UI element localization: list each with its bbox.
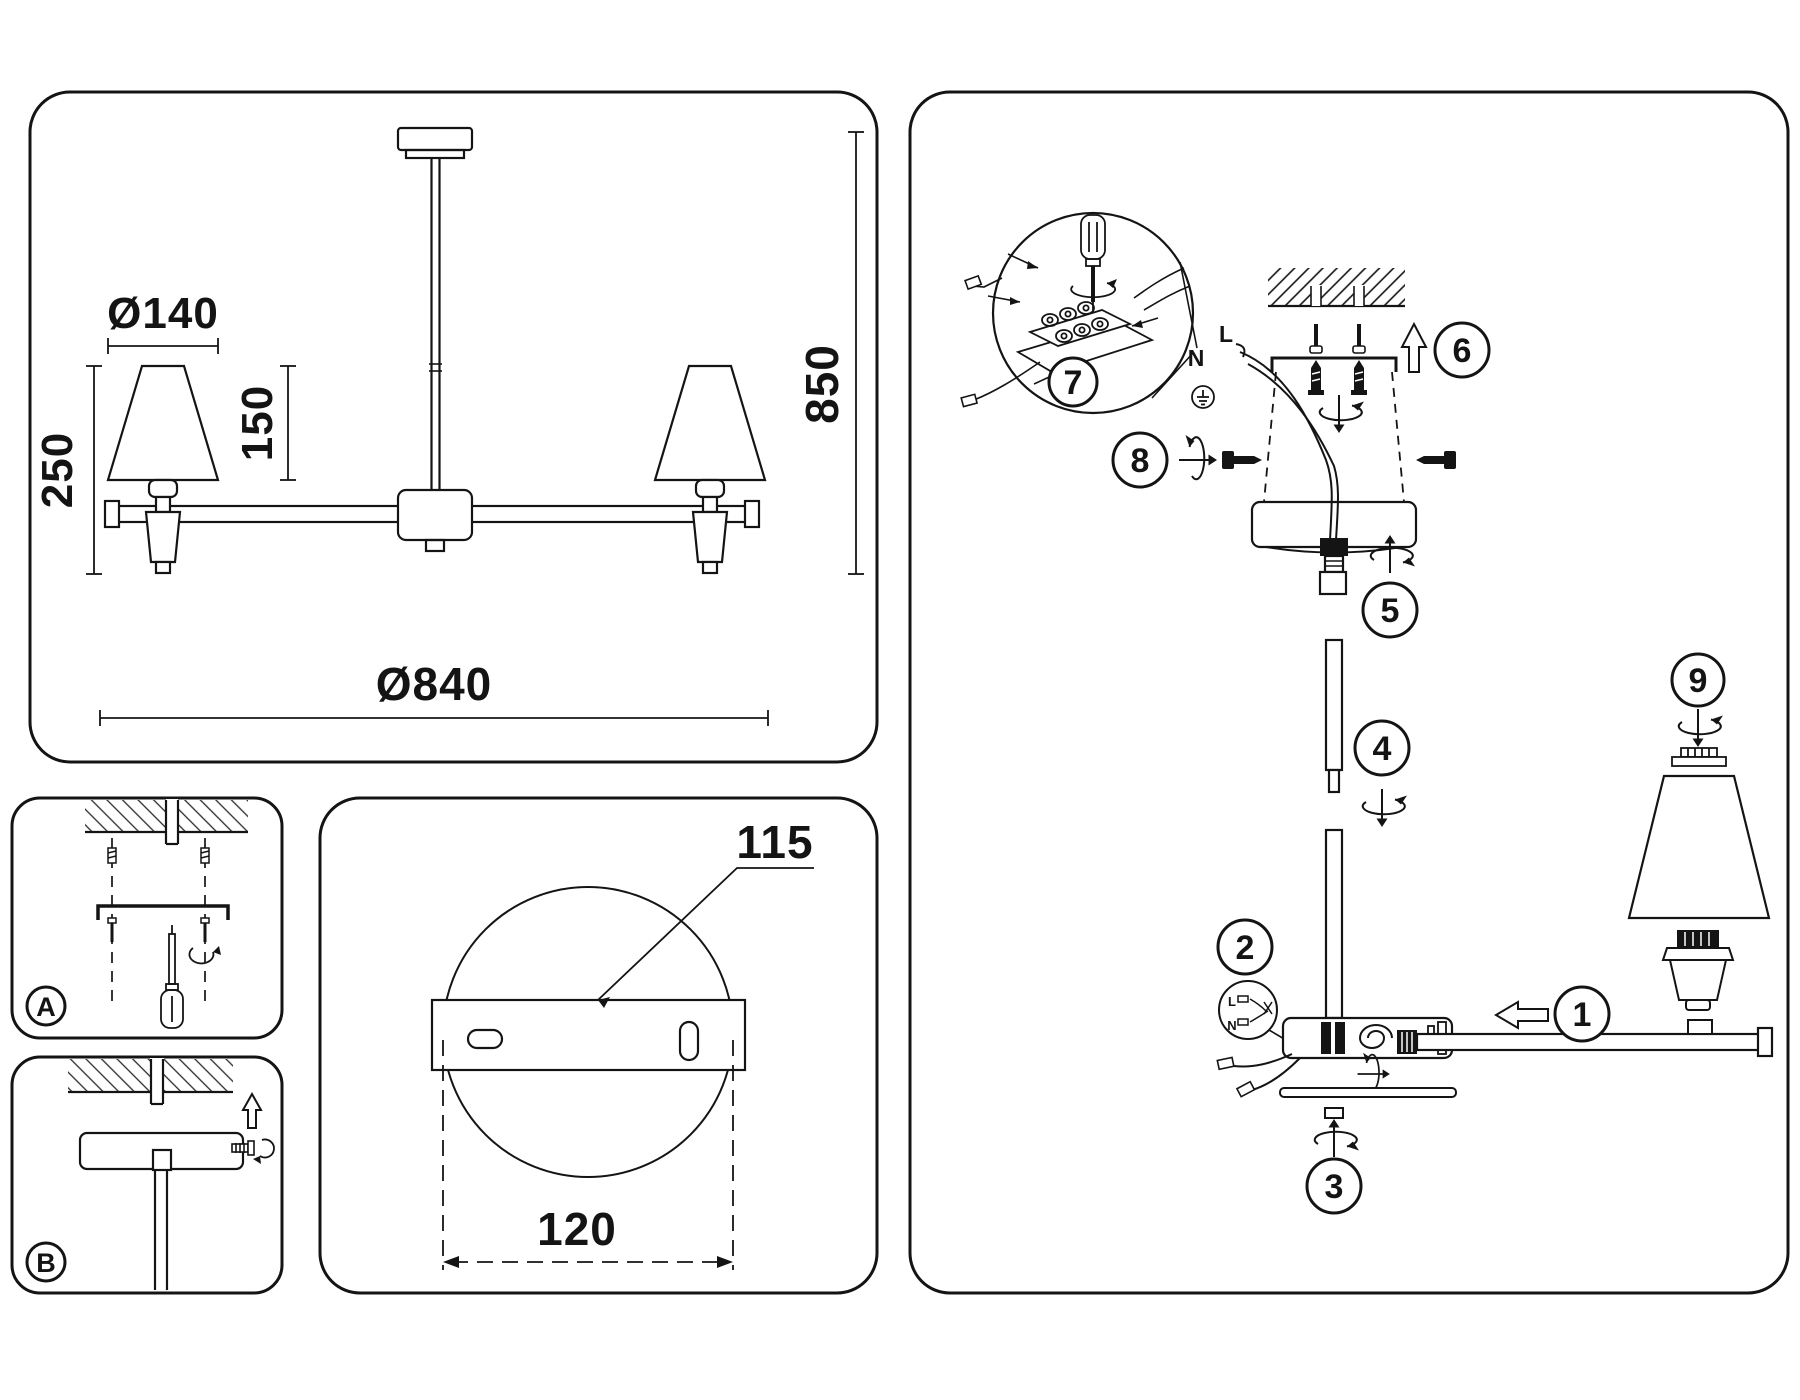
dim-bracket-length-label: 115 [736,816,813,868]
step-9-badge: 9 [1672,654,1724,706]
hub-nut [1325,1108,1343,1118]
connector-neutral-label: N [1227,1018,1236,1033]
dim-mount-span: 120 [443,1040,733,1270]
step-3-label: 3 [1325,1168,1344,1206]
dim-fixture-height: 850 [796,132,864,574]
dim-fixture-height-label: 850 [796,344,848,424]
step-4-label: 4 [1373,730,1392,768]
panel-b-label: B [36,1248,56,1278]
panel-assembly: 6 N L [910,92,1788,1293]
lamp-shade [1629,776,1769,918]
panel-mount-plate: 115 120 [320,798,877,1293]
step-7-badge: 7 [1049,358,1097,406]
screwdriver-icon [161,925,183,1028]
arrow-up-icon [1402,324,1426,372]
step-8-badge: 8 [1113,433,1167,487]
instruction-sheet: Ø140 150 250 Ø840 [0,0,1800,1400]
panel-step-a: A [12,798,282,1038]
rotate-icon [1315,1119,1359,1157]
mounting-bracket [1272,358,1396,372]
dim-fixture-diameter-label: Ø840 [376,658,493,710]
rotate-icon [1179,435,1217,479]
screw-icons [108,918,209,942]
step-6-badge: 6 [1435,323,1489,377]
panel-a-label: A [36,992,56,1022]
ceiling-hatch [1268,268,1405,306]
rod-connector [1329,770,1339,792]
dim-fixture-diameter: Ø840 [100,658,768,726]
diagram-canvas: Ø140 150 250 Ø840 [0,0,1800,1400]
rotate-icon [1679,709,1723,747]
rotate-icon [1363,789,1407,827]
dim-bracket-length: 115 [598,816,814,1008]
rod-lower [1326,830,1342,1018]
terminal-detail-circle: 7 [961,213,1197,413]
step-5-label: 5 [1381,592,1400,630]
step-2-badge: 2 [1218,920,1272,974]
arrow-left-icon [1496,1002,1548,1028]
dim-lamp-height: 250 [33,366,102,574]
step-5-badge: 5 [1363,583,1417,637]
wire-neutral-label: N [1188,345,1205,371]
dim-shade-diameter: Ø140 [107,289,219,354]
dim-mount-span-label: 120 [537,1203,617,1255]
connector-live-label: L [1228,994,1236,1009]
rod-upper [1326,640,1342,770]
lamp-left [108,366,218,573]
dim-shade-height-label: 150 [233,385,282,461]
screw-icons [1310,324,1365,353]
panel-a-badge: A [27,987,65,1025]
hub-cover-plate [1280,1088,1456,1097]
step-3-badge: 3 [1307,1159,1361,1213]
dim-lamp-height-label: 250 [33,432,82,508]
anchor-screw-icons [1308,360,1367,395]
step-7-label: 7 [1064,364,1083,402]
threaded-nipple [1320,538,1348,594]
shade-ring [1672,748,1726,766]
lamp-socket [1663,930,1733,1010]
dim-shade-diameter-label: Ø140 [107,289,219,338]
step-4-badge: 4 [1355,721,1409,775]
wall-anchor-icons [108,848,209,863]
fixture-side-view [105,128,765,573]
wire-live-label: L [1219,321,1233,347]
step-9-label: 9 [1689,662,1708,700]
step-8-label: 8 [1131,442,1150,480]
dim-shade-height: 150 [233,366,296,480]
step-1-badge: 1 [1555,987,1609,1041]
step-1-label: 1 [1573,996,1592,1034]
rotate-icon [1320,395,1364,433]
ground-icon [1192,386,1214,408]
arrow-up-icon [243,1094,261,1128]
lamp-right [655,366,765,573]
step-2-label: 2 [1236,929,1255,967]
side-screw-icons [1222,451,1456,469]
panel-b-badge: B [27,1243,65,1281]
panel-step-b: B [12,1057,282,1293]
rotate-icon [253,1139,274,1164]
step-6-label: 6 [1453,332,1472,370]
panel-dimensions: Ø140 150 250 Ø840 [30,92,877,762]
